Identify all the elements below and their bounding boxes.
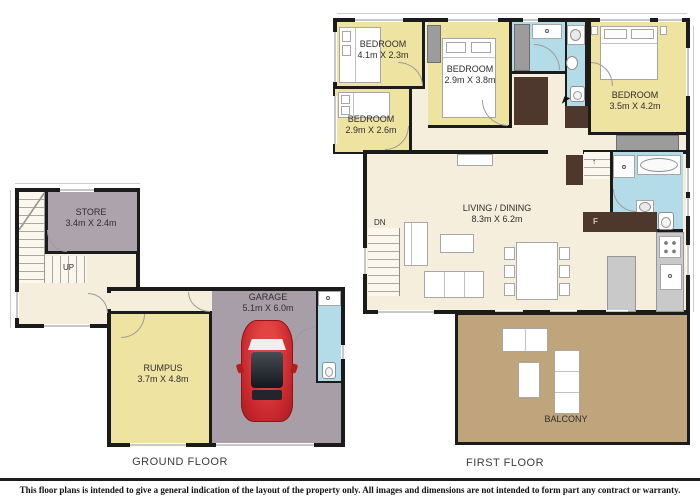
bed-line (443, 57, 495, 58)
window (686, 245, 690, 275)
car-windshield (248, 339, 286, 350)
armchair (404, 222, 428, 266)
window (333, 32, 337, 82)
footer-divider (0, 478, 700, 481)
car-rear-window (252, 390, 282, 400)
window (15, 292, 19, 318)
window (44, 324, 90, 328)
garage-door (216, 443, 314, 447)
dining-table (516, 242, 558, 300)
ground-floor-title: GROUND FLOOR (105, 456, 255, 468)
toilet (658, 212, 674, 230)
car-roof (251, 352, 283, 388)
window (686, 168, 690, 192)
window (600, 18, 650, 22)
room-name: RUMPUS (131, 363, 195, 374)
room-name: BEDROOM (603, 90, 667, 101)
window (60, 188, 94, 192)
room-name: BEDROOM (351, 39, 415, 50)
fridge: F (583, 212, 610, 232)
sink-dot (326, 296, 330, 300)
room-label: BEDROOM 4.1m X 2.3m (351, 39, 415, 61)
room-dims: 3.5m X 4.2m (603, 101, 667, 112)
room-label: BEDROOM 2.9m X 3.8m (438, 64, 502, 86)
room-label: LIVING / DINING 8.3m X 6.2m (437, 203, 557, 225)
bed-line (601, 43, 657, 44)
window (686, 198, 690, 216)
dining-chair (504, 265, 515, 278)
dining-chair (559, 247, 570, 260)
room-name: GARAGE (236, 292, 300, 303)
up-arrow-icon: ↑ (592, 157, 596, 166)
eave-line (10, 190, 11, 328)
robe-strip (616, 135, 679, 151)
room-dims: 8.3m X 6.2m (437, 214, 557, 225)
door-opening (341, 345, 345, 359)
disclaimer-text: This floor plans is intended to give a g… (0, 485, 700, 495)
window (448, 18, 498, 22)
pillow (631, 29, 654, 39)
shower (514, 24, 530, 71)
room-name: STORE (59, 207, 123, 218)
bedside-table (660, 26, 667, 35)
room-dims: 2.9m X 3.8m (438, 75, 502, 86)
sink-dot (668, 274, 672, 278)
dining-chair (559, 283, 570, 296)
pillow (471, 42, 491, 53)
window (130, 443, 186, 447)
eave-line (337, 13, 687, 14)
lounge-line (555, 392, 579, 393)
room-name: LIVING / DINING (437, 203, 557, 214)
sofa (424, 271, 484, 298)
pillow (342, 45, 351, 56)
first-floor-title: FIRST FLOOR (430, 457, 580, 469)
linen-closet-dark (566, 155, 583, 185)
room-label: GARAGE 5.1m X 6.0m (236, 292, 300, 314)
wall-opening (548, 150, 583, 154)
room-dims: 3.4m X 2.4m (59, 218, 123, 229)
vanity-bowl (639, 202, 651, 212)
shower-drain-dot (622, 165, 626, 169)
robe-closet-dark (514, 77, 548, 125)
room-label: BALCONY (531, 414, 601, 425)
lounge-line (555, 371, 579, 372)
pillow (446, 42, 466, 53)
sideboard (457, 154, 493, 166)
dining-chair (559, 265, 570, 278)
window (523, 18, 538, 22)
room-name: BEDROOM (339, 114, 403, 125)
window (378, 310, 434, 314)
window (686, 48, 690, 96)
window (658, 18, 682, 22)
wc-sink-bowl (570, 29, 581, 41)
room-name: BEDROOM (438, 64, 502, 75)
eave-line (15, 183, 140, 184)
room-dims: 2.9m X 2.6m (339, 125, 403, 136)
room-dims: 4.1m X 2.3m (351, 50, 415, 61)
sun-lounge (554, 350, 580, 414)
pillow (341, 95, 350, 104)
room-label: STORE 3.4m X 2.4m (59, 207, 123, 229)
eave-line (693, 26, 694, 312)
kitchen-island (607, 256, 636, 312)
stair-direction-label: UP (63, 263, 74, 272)
robe-closet (427, 25, 441, 63)
toilet (570, 86, 585, 102)
toilet (322, 362, 336, 379)
pillow (604, 29, 627, 39)
dining-chair (504, 247, 515, 260)
window (333, 96, 337, 144)
armchair-line (411, 223, 412, 265)
bedside-table (591, 26, 598, 35)
bench-line (525, 329, 526, 351)
window (363, 248, 367, 274)
staircase-landing (584, 152, 610, 179)
stove (659, 236, 681, 258)
hall-closet-dark (565, 106, 588, 128)
wc-basin (566, 56, 578, 70)
pantry (610, 212, 657, 232)
outdoor-table (518, 362, 540, 398)
stair-direction-label: DN (374, 218, 386, 227)
room-label: BEDROOM 2.9m X 2.6m (339, 114, 403, 136)
dining-chair (504, 283, 515, 296)
sofa-line (464, 272, 465, 297)
window (355, 18, 403, 22)
wall-opening (107, 293, 115, 309)
sofa-line (444, 272, 445, 297)
fridge-label: F (593, 217, 598, 226)
room-label: RUMPUS 3.7m X 4.8m (131, 363, 195, 385)
basin-dot (545, 29, 549, 33)
room-dims: 5.1m X 6.0m (236, 303, 300, 314)
car-illustration (241, 320, 293, 422)
floor-plan-canvas: BEDROOM 4.1m X 2.3m BEDROOM 2.9m X 2.6m … (0, 0, 700, 500)
coffee-table (440, 234, 474, 253)
bathtub-bowl (640, 158, 678, 172)
pillow (342, 31, 351, 42)
room-label: BEDROOM 3.5m X 4.2m (603, 90, 667, 112)
stair-break-line (19, 192, 45, 230)
staircase-down (368, 228, 400, 296)
room-name: BALCONY (531, 414, 601, 425)
room-dims: 3.7m X 4.8m (131, 374, 195, 385)
